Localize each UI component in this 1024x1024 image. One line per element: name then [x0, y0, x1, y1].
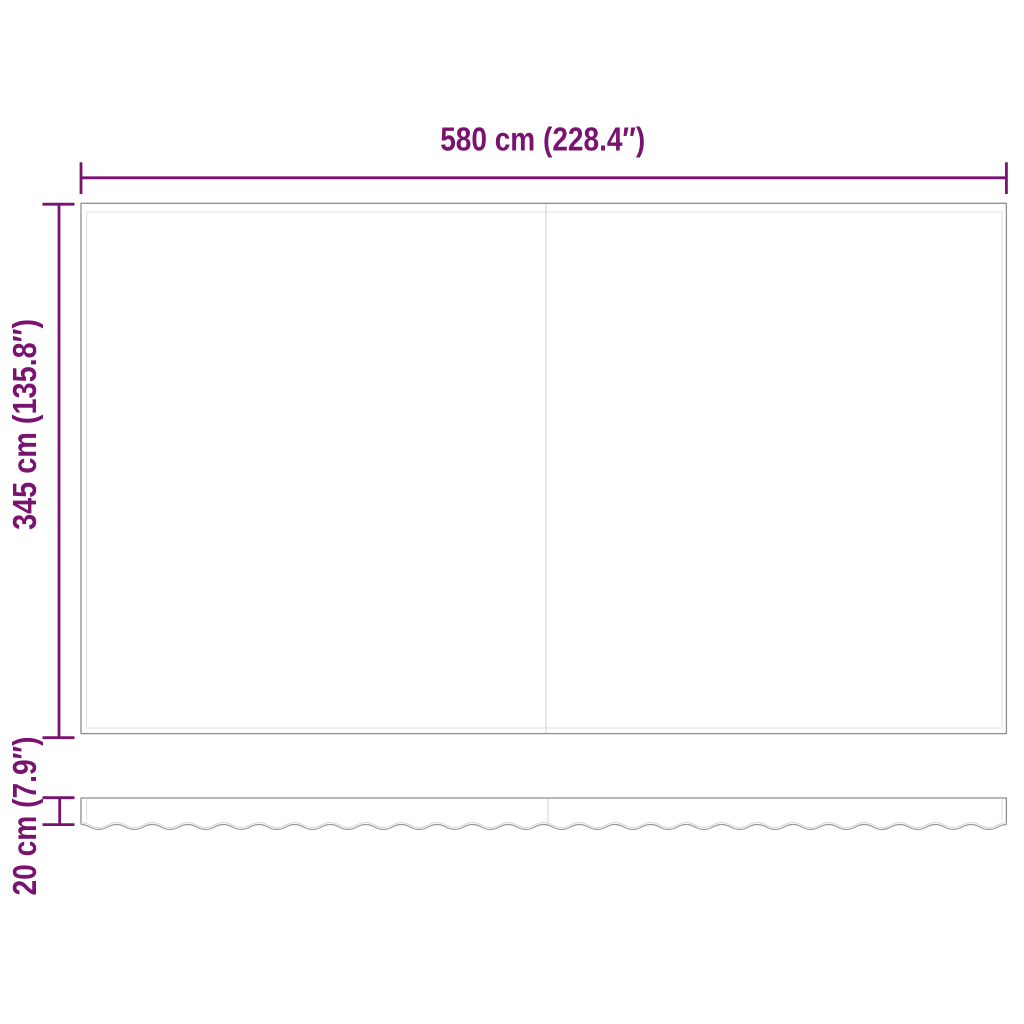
svg-text:580 cm (228.4″): 580 cm (228.4″): [440, 121, 645, 158]
svg-text:345 cm (135.8″): 345 cm (135.8″): [6, 319, 43, 530]
svg-text:20 cm (7.9″): 20 cm (7.9″): [6, 737, 43, 896]
